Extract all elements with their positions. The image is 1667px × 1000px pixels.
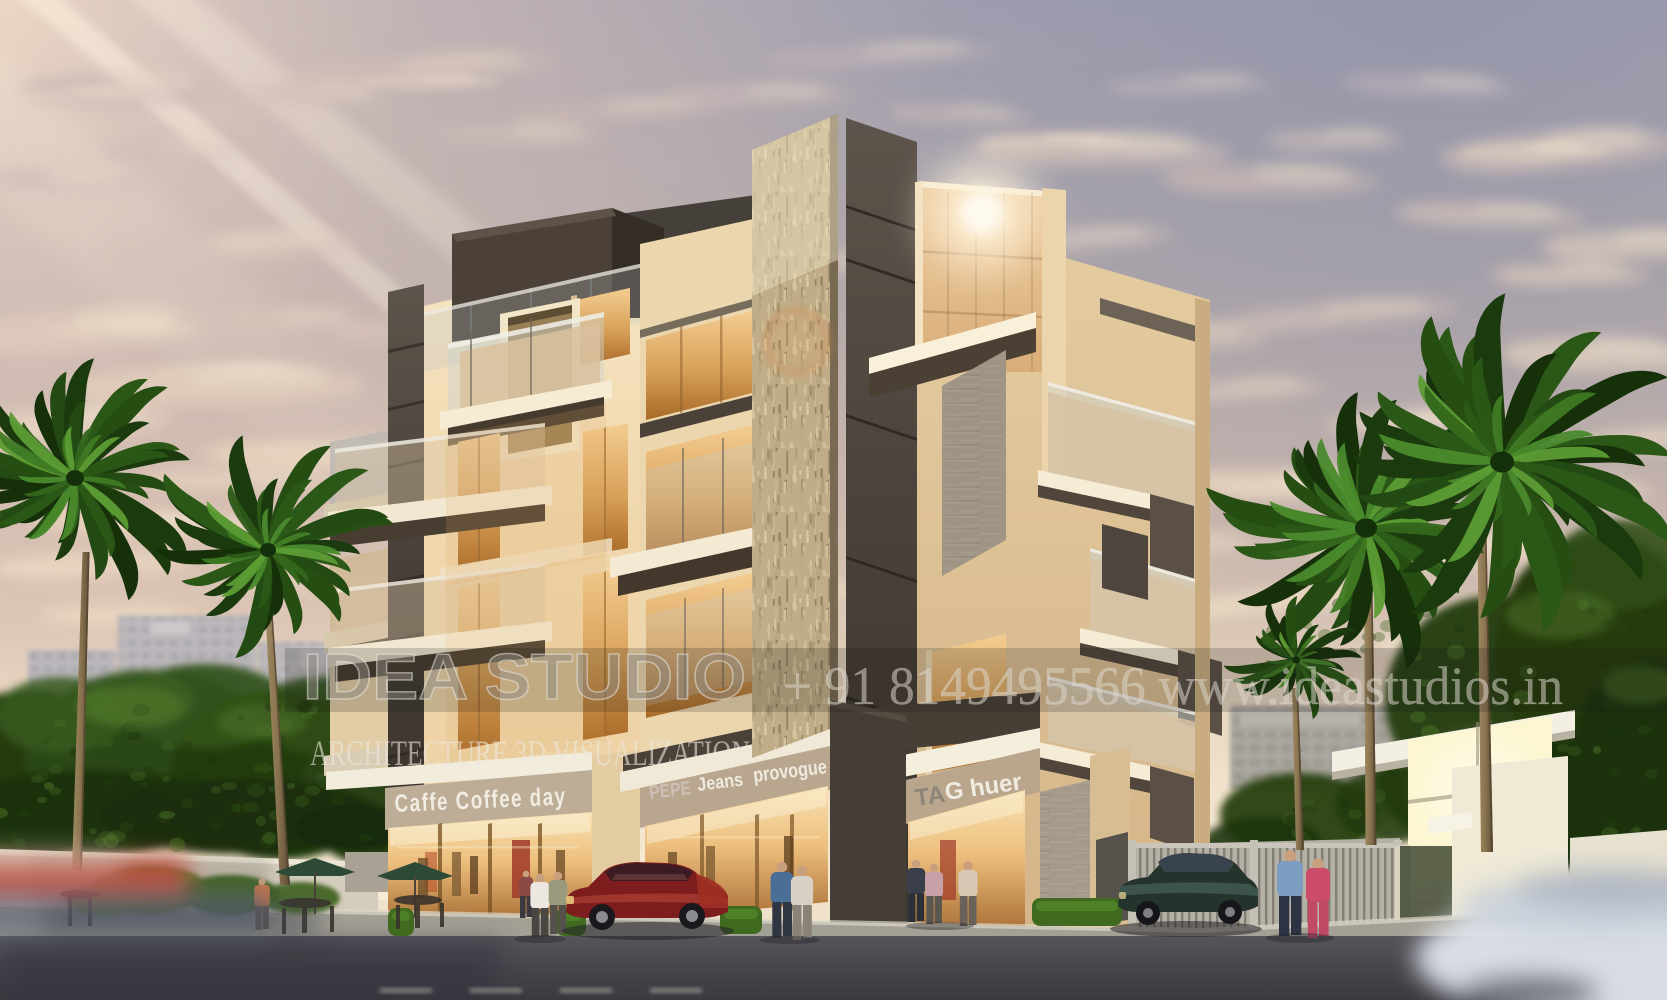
- svg-text:ARCHITECTURE 3D VISUALIZATION: ARCHITECTURE 3D VISUALIZATION: [310, 733, 750, 773]
- svg-text:TA: TA: [913, 781, 947, 812]
- svg-text:IDEA STUDIO: IDEA STUDIO: [303, 641, 746, 714]
- svg-text:+ 91 8149495566 www.ideastudi: + 91 8149495566 www.ideastudios.in: [783, 656, 1563, 716]
